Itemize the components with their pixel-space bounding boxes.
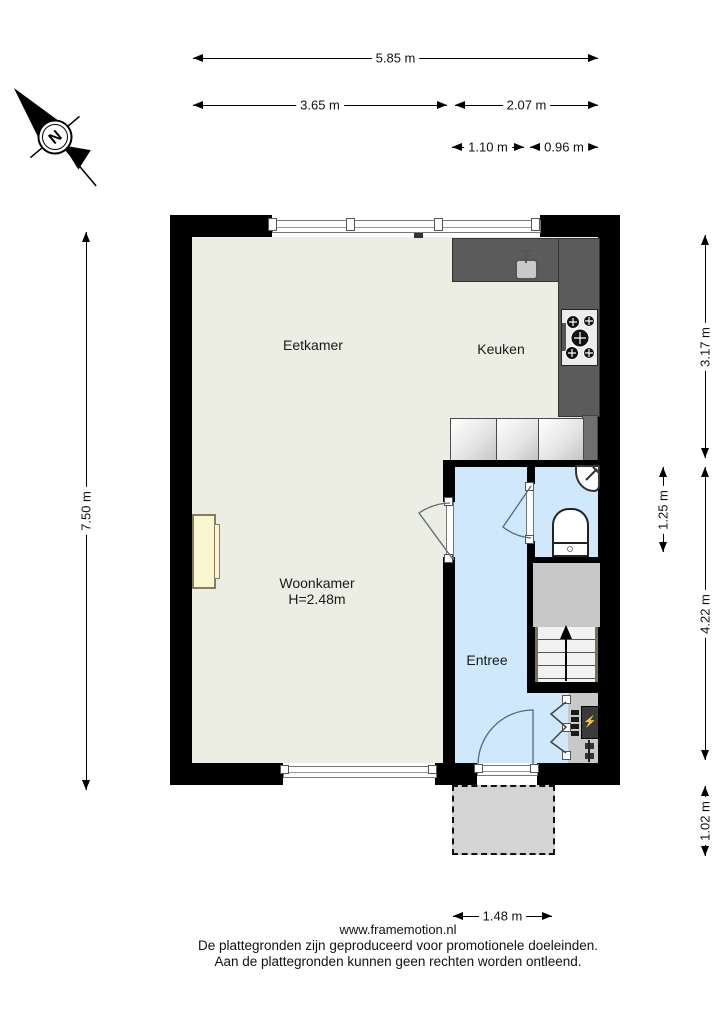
room-label-eetkamer: Eetkamer [283,337,343,353]
floorplan-page: N [0,0,724,1024]
footer-website: www.framemotion.nl [36,922,724,938]
door-swing-living [419,503,452,558]
room-label-entree: Entree [466,652,507,668]
dimension-label: 5.85 m [372,51,420,66]
dimension-label: 0.96 m [540,140,588,155]
room-label-keuken: Keuken [477,341,524,357]
dimension-0.96-m: 0.96 m [530,139,598,155]
sink-faucet-icon [520,251,532,263]
footer-disclaimer-2: Aan de plattegronden kunnen geen rechten… [36,954,724,970]
woonkamer-name: Woonkamer [279,575,354,591]
dimension-5.85-m: 5.85 m [193,50,598,66]
dimension-label: 1.25 m [656,486,671,534]
dimension-2.07-m: 2.07 m [455,97,598,113]
dimension-label: 2.07 m [503,98,551,113]
dimension-label: 1.10 m [464,140,512,155]
footer-disclaimer-1: De plattegronden zijn geproduceerd voor … [36,938,724,954]
dimension-1.10-m: 1.10 m [452,139,524,155]
stairs-up-arrow [560,625,572,639]
dimension-label: 3.65 m [296,98,344,113]
door-swing-wc [503,486,531,538]
dimension-label: 4.22 m [698,590,713,638]
woonkamer-ceiling-height: H=2.48m [279,591,354,607]
dimension-1.02-m: 1.02 m [697,786,713,856]
dimension-3.65-m: 3.65 m [193,97,447,113]
dimension-label: 1.02 m [698,797,713,845]
footer: www.framemotion.nl De plattegronden zijn… [36,922,724,970]
bifold-door-zigzag [551,702,566,753]
plan-linework [0,0,724,1024]
dimension-1.25-m: 1.25 m [655,467,671,552]
basin-faucet-icon [586,467,599,480]
dimension-7.50-m: 7.50 m [78,232,94,790]
dimension-4.22-m: 4.22 m [697,467,713,760]
door-swing-front [478,710,533,765]
room-label-woonkamer: Woonkamer H=2.48m [279,575,354,607]
dimension-label: 3.17 m [698,323,713,371]
dimension-3.17-m: 3.17 m [697,235,713,458]
dimension-label: 7.50 m [79,487,94,535]
